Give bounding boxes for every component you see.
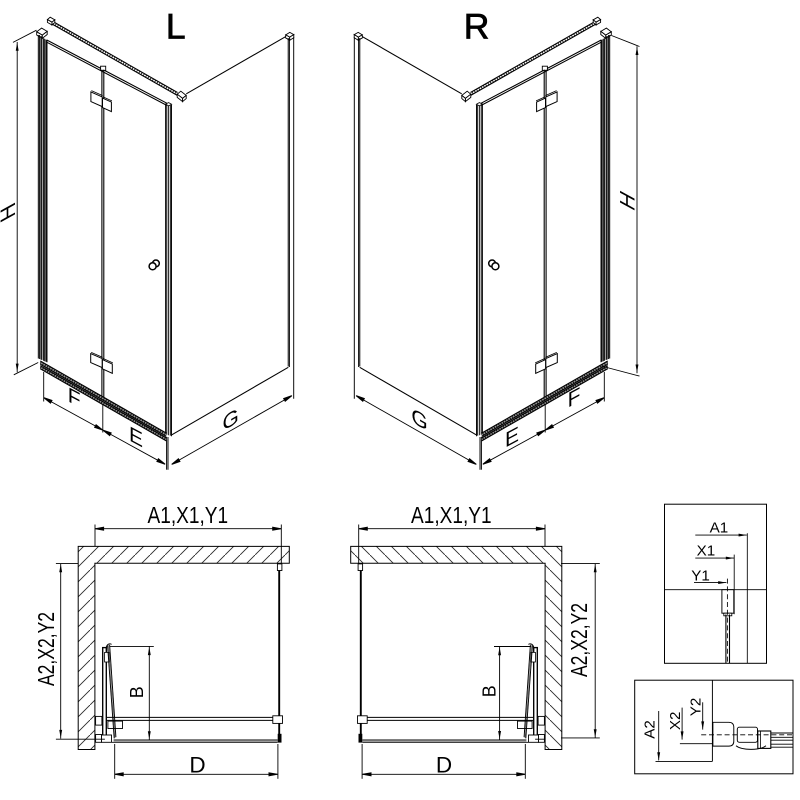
svg-text:B: B: [127, 686, 147, 698]
svg-text:A2,X2,Y2: A2,X2,Y2: [566, 603, 592, 677]
svg-text:L: L: [166, 7, 186, 47]
svg-text:X1: X1: [697, 543, 716, 560]
svg-text:Y1: Y1: [691, 568, 710, 585]
svg-text:D: D: [189, 752, 205, 777]
svg-text:X2: X2: [667, 712, 684, 731]
svg-text:A1,X1,Y1: A1,X1,Y1: [148, 502, 229, 528]
svg-text:A1: A1: [710, 519, 729, 536]
svg-text:Y2: Y2: [687, 698, 704, 717]
svg-text:A1,X1,Y1: A1,X1,Y1: [411, 502, 492, 528]
svg-text:B: B: [480, 685, 500, 697]
svg-text:R: R: [464, 7, 490, 47]
svg-text:A2,X2,Y2: A2,X2,Y2: [33, 612, 59, 686]
svg-text:D: D: [436, 752, 452, 777]
svg-text:A2: A2: [642, 720, 659, 739]
